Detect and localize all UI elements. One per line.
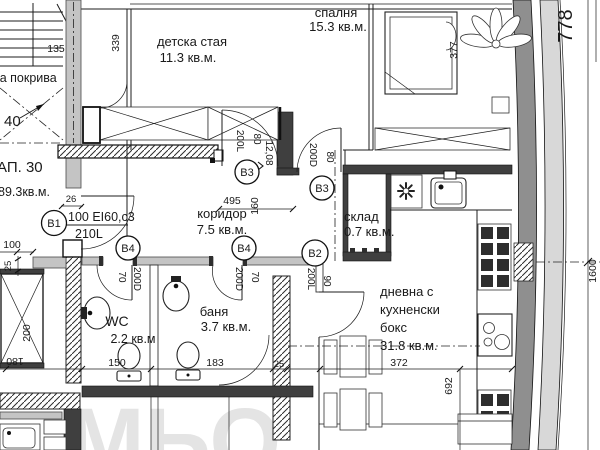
- room-living-area: 31.8 кв.м.: [380, 338, 438, 353]
- door-tag-b4-bath: В4: [232, 236, 256, 260]
- door-tag-b4-wc: В4: [116, 236, 140, 260]
- door-b1-spec1: 100 EI60,c3: [68, 210, 135, 224]
- room-bedroom-area: 15.3 кв.м.: [309, 19, 367, 34]
- door-tag-b4a-label: В4: [121, 243, 134, 255]
- door-tag-b3a-label: В3: [240, 167, 253, 179]
- door-b4b-height: 200D: [233, 267, 244, 291]
- apartment-area: 89.3кв.м.: [0, 185, 50, 199]
- room-wc-name: WC: [105, 313, 128, 329]
- door-b3b-width: 80: [324, 151, 335, 163]
- room-living-line1: дневна с: [380, 284, 434, 299]
- door-tag-b2-label: В2: [308, 248, 321, 260]
- door-tag-b1: В1: [42, 211, 67, 236]
- door-b3a-height: 200L: [234, 130, 245, 153]
- door-tag-b2: В2: [302, 240, 328, 266]
- door-tag-b1-label: В1: [47, 218, 60, 230]
- wardrobe-bedroom-icon: [375, 128, 510, 150]
- balcony-window: [458, 414, 512, 444]
- elevator-shaft: [0, 269, 44, 368]
- dim-facade-height: 778: [555, 9, 577, 42]
- room-bath-name: баня: [200, 304, 229, 319]
- door-b3a-width: 80: [251, 133, 262, 145]
- dim-corridor-width: 495: [223, 195, 241, 207]
- dim-row-180: 180: [6, 355, 24, 367]
- room-bedroom-name: спалня: [315, 5, 358, 20]
- dim-stairs: 135: [47, 43, 65, 55]
- room-storage-name: склад: [344, 209, 379, 224]
- door-b2-height: 200L: [305, 268, 316, 291]
- room-corridor-area: 7.5 кв.м.: [197, 222, 247, 237]
- room-bath-area: 3.7 кв.м.: [201, 319, 251, 334]
- door-b4b-width: 70: [249, 271, 260, 283]
- watermark-text: МЬО: [68, 390, 281, 450]
- room-children-name: детска стая: [157, 34, 227, 49]
- roof-note: за покрива: [0, 71, 57, 85]
- dim-row-150: 150: [108, 357, 126, 369]
- door-tag-b4b-label: В4: [237, 243, 250, 255]
- door-b3b-height: 200D: [307, 143, 318, 167]
- bath-toilet-icon: [176, 342, 200, 380]
- room-children-area: 11.3 кв.м.: [160, 50, 217, 65]
- fridge-cabinet-icon: [478, 224, 511, 290]
- dim-children-width: 339: [110, 34, 122, 52]
- dim-entry-niche: 26: [66, 194, 77, 205]
- adjacent-unit-label: 40: [4, 113, 21, 130]
- door-tag-b3-bedroom: В3: [310, 176, 334, 200]
- floor-plan: МЬО: [0, 0, 600, 450]
- room-storage-area: 0.7 кв.м.: [344, 224, 394, 239]
- door-tag-b3-children: В3: [235, 160, 259, 184]
- stove-icon: [478, 314, 512, 356]
- dim-shaft-depth2: 200: [21, 324, 33, 342]
- dim-left-small: 25: [3, 261, 14, 272]
- dim-left-width: 100: [3, 239, 21, 251]
- dim-living-width: 372: [390, 357, 408, 369]
- level-mark: 12,08: [263, 140, 274, 165]
- door-b4a-width: 70: [116, 271, 127, 283]
- door-b4a-height: 200D: [131, 267, 142, 291]
- room-wc-area: 2.2 кв.м: [110, 332, 155, 346]
- door-tag-b3b-label: В3: [315, 183, 328, 195]
- room-corridor-name: коридор: [197, 206, 247, 221]
- dim-living-height: 692: [443, 377, 455, 395]
- floor-plan-canvas: МЬО: [0, 0, 600, 450]
- dim-bedroom-width: 377: [448, 41, 460, 59]
- apartment-label: АП. 30: [0, 159, 43, 176]
- door-b1-spec2: 210L: [75, 227, 103, 241]
- door-b2-width: 90: [321, 275, 332, 287]
- room-living-line2: кухненски: [380, 302, 440, 317]
- dim-corridor-depth: 160: [249, 197, 261, 215]
- dim-facade-lower: 1600: [587, 259, 599, 283]
- dim-row-25: 25: [274, 359, 285, 370]
- dim-row-183: 183: [206, 357, 224, 369]
- room-living-line3: бокс: [380, 320, 408, 335]
- lower-apartment-kitchen: [0, 412, 66, 450]
- kitchen-vent-icon: [391, 175, 422, 208]
